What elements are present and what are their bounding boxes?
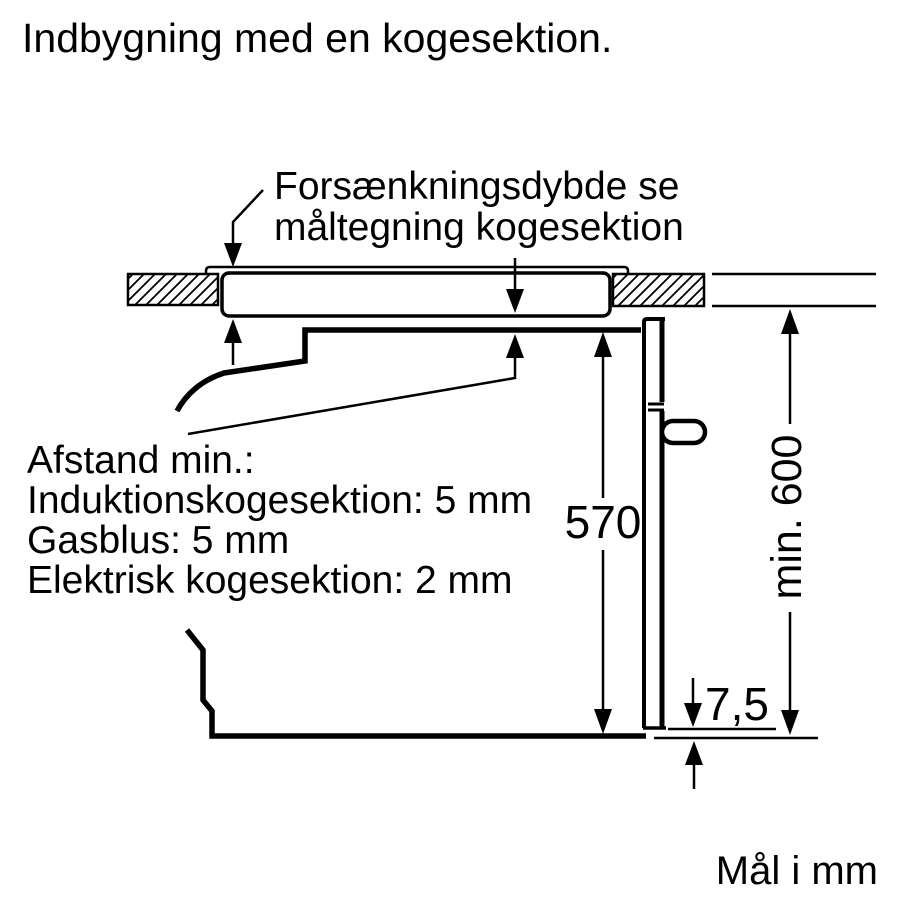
recess-depth-note-line1: Forsænkningsdybde se bbox=[274, 166, 684, 207]
countertop-right bbox=[613, 274, 704, 306]
clearance-note-heading: Afstand min.: bbox=[27, 441, 532, 481]
oven-front-frame bbox=[643, 319, 666, 728]
clearance-note-leader-arrow bbox=[188, 334, 524, 434]
units-note: Mål i mm bbox=[716, 848, 878, 894]
clearance-note-gas: Gasblus: 5 mm bbox=[27, 521, 532, 561]
dim-600-label: min. 600 bbox=[765, 427, 809, 607]
countertop-left bbox=[128, 274, 218, 305]
page-title: Indbygning med en kogesektion. bbox=[22, 14, 612, 62]
installation-diagram: Indbygning med en kogesektion. Forsænkni… bbox=[0, 0, 900, 900]
clearance-note-induction: Induktionskogesektion: 5 mm bbox=[27, 481, 532, 521]
cooktop-body bbox=[222, 273, 610, 316]
recess-note-leader-arrow bbox=[224, 190, 263, 267]
clearance-note: Afstand min.: Induktionskogesektion: 5 m… bbox=[27, 441, 532, 601]
dim-75-label: 7,5 bbox=[705, 681, 769, 727]
oven-bottom-outline bbox=[187, 630, 646, 736]
door-handle bbox=[662, 421, 705, 443]
clearance-arrow-left bbox=[224, 319, 242, 365]
recess-depth-note-line2: måltegning kogesektion bbox=[274, 207, 684, 248]
worktop-level-lines bbox=[712, 274, 876, 306]
recess-depth-note: Forsænkningsdybde se måltegning kogesekt… bbox=[274, 166, 684, 248]
clearance-note-electric: Elektrisk kogesektion: 2 mm bbox=[27, 561, 532, 601]
oven-top-outline bbox=[177, 330, 641, 411]
dim-570-label: 570 bbox=[563, 499, 643, 545]
